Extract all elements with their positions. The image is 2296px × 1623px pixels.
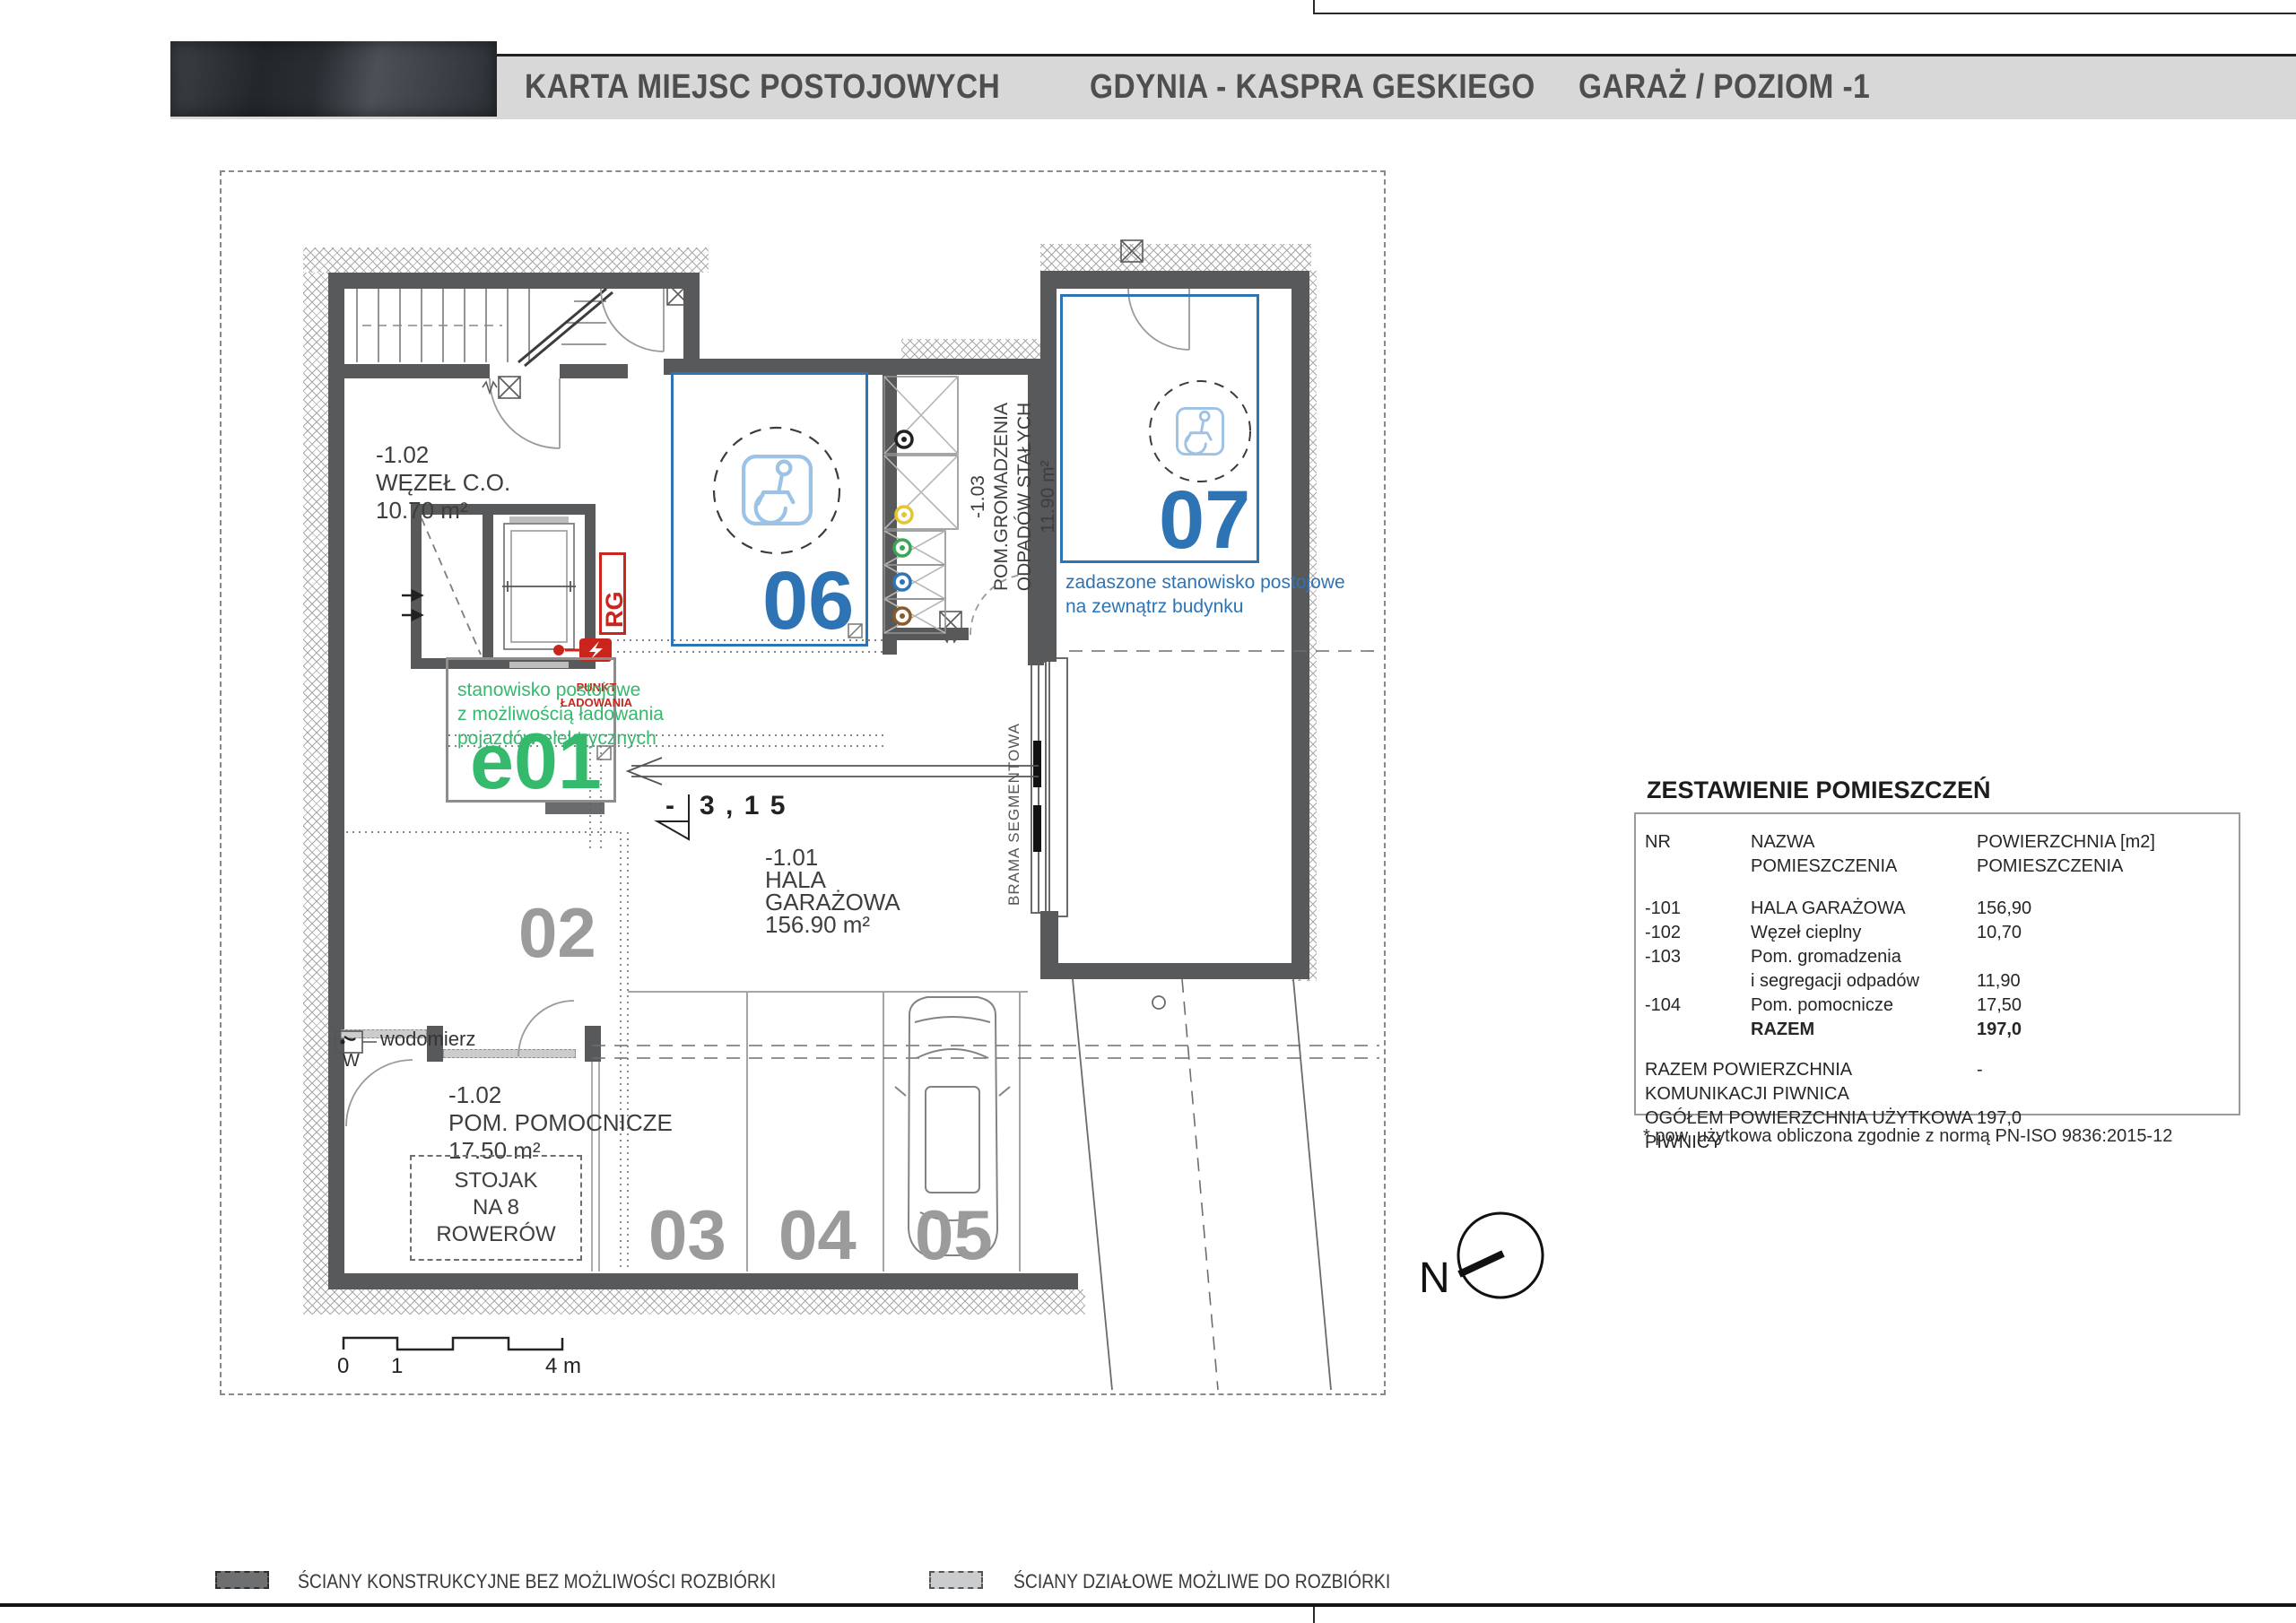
gate-label: BRAMA SEGMENTOWA <box>1005 723 1023 906</box>
space-number-03: 03 <box>648 1194 726 1276</box>
table-row: -104Pom. pomocnicze17,50 <box>1636 994 2239 1018</box>
legend-swatch-structural <box>215 1571 269 1589</box>
header-title-location: GDYNIA - KASPRA GESKIEGO <box>1090 68 1596 107</box>
table-footnote: * pow. użytkowa obliczona zgodnie z norm… <box>1643 1126 2172 1147</box>
space-number-07: 07 <box>1159 473 1250 568</box>
elevator-shaft-wall <box>483 504 493 669</box>
hatch-waste-top <box>901 339 1043 360</box>
table-cell <box>1645 969 1751 994</box>
table-row: i segregacji odpadów11,90 <box>1636 969 2239 994</box>
level-value: 3 , 1 5 <box>700 791 787 821</box>
space-number-02: 02 <box>518 892 596 974</box>
rg-label: RG <box>601 592 629 629</box>
wall <box>560 364 628 378</box>
scale-0: 0 <box>337 1354 349 1379</box>
water-meter-symbol: W <box>343 1051 360 1072</box>
table-cell: RAZEM POWIERZCHNIA KOMUNIKACJI PIWNICA <box>1645 1058 1977 1107</box>
header-title-level: GARAŻ / POZIOM -1 <box>1578 68 1910 107</box>
room-table: NRNAZWAPOWIERZCHNIA [m2] POMIESZCZENIAPO… <box>1634 812 2240 1115</box>
table-title: ZESTAWIENIE POMIESZCZEŃ <box>1647 777 1991 804</box>
table-cell: Pom. gromadzenia <box>1751 945 1977 969</box>
legend-swatch-partition <box>929 1571 983 1589</box>
header-title-project: KARTA MIEJSC POSTOJOWYCH <box>525 68 1065 107</box>
legend-label-structural: ŚCIANY KONSTRUKCYJNE BEZ MOŻLIWOŚCI ROZB… <box>298 1570 841 1593</box>
table-cell <box>1645 1018 1751 1042</box>
hatch-07-top <box>1040 244 1311 271</box>
table-cell: 197,0 <box>1977 1018 2230 1042</box>
table-header: NRNAZWAPOWIERZCHNIA [m2] <box>1636 814 2239 855</box>
wall <box>1040 271 1309 289</box>
partition-post <box>585 1026 601 1062</box>
table-cell: 10,70 <box>1977 921 2230 945</box>
wall <box>1291 271 1309 979</box>
drawing-sheet: KARTA MIEJSC POSTOJOWYCH GDYNIA - KASPRA… <box>0 0 2296 1623</box>
room-label-hala: -1.01HALAGARAŻOWA156.90 m² <box>765 846 900 936</box>
hatch-bottom <box>303 1289 1085 1315</box>
table-cell: 17,50 <box>1977 994 2230 1018</box>
wall <box>683 273 700 371</box>
room-label-odpady: -1.03POM.GROMADZENIAODPADÓW STAŁYCH11.90… <box>967 384 1060 610</box>
table-cell: -103 <box>1645 945 1751 969</box>
frame-bottom-line <box>0 1603 2296 1607</box>
space-number-04: 04 <box>778 1194 857 1276</box>
table-cell: Węzeł cieplny <box>1751 921 1977 945</box>
table-cell: i segregacji odpadów <box>1751 969 1977 994</box>
table-row: -102Węzeł cieplny10,70 <box>1636 921 2239 945</box>
table-cell: 11,90 <box>1977 969 2230 994</box>
elevator-shaft-wall <box>411 504 422 669</box>
frame-bottom-tick <box>1313 1607 1315 1623</box>
water-meter-label: wodomierz <box>380 1028 475 1051</box>
table-row: RAZEM197,0 <box>1636 1018 2239 1042</box>
table-cell <box>1977 945 2230 969</box>
north-label: N <box>1419 1254 1450 1303</box>
elevator-shaft-wall <box>585 504 596 669</box>
space-number-05: 05 <box>915 1194 993 1276</box>
table-summary-row: RAZEM POWIERZCHNIA KOMUNIKACJI PIWNICA- <box>1636 1058 2239 1107</box>
table-row: -103Pom. gromadzenia <box>1636 945 2239 969</box>
e01-note: stanowisko postojowez możliwością ładowa… <box>457 678 664 751</box>
frame-top-line <box>1313 13 2296 14</box>
table-cell: - <box>1977 1058 2230 1107</box>
table-cell: HALA GARAŻOWA <box>1751 897 1977 921</box>
frame-top-tick <box>1313 0 1315 13</box>
scale-4m: 4 m <box>545 1354 581 1379</box>
wall <box>883 359 897 655</box>
table-row: -101HALA GARAŻOWA156,90 <box>1636 897 2239 921</box>
hatch-top <box>303 247 709 273</box>
hatch-left <box>303 247 330 1315</box>
table-cell: -102 <box>1645 921 1751 945</box>
table-cell: -104 <box>1645 994 1751 1018</box>
table-cell: 156,90 <box>1977 897 2230 921</box>
wall <box>1040 911 1058 979</box>
legend-label-partition: ŚCIANY DZIAŁOWE MOŻLIWE DO ROZBIÓRKI <box>1013 1570 1442 1593</box>
wall <box>328 273 344 1289</box>
room-label-wezel: -1.02WĘZEŁ C.O.10.70 m² <box>376 441 510 525</box>
table-cell: Pom. pomocnicze <box>1751 994 1977 1018</box>
wall <box>328 273 700 289</box>
wall <box>899 359 1042 375</box>
wall <box>328 364 490 378</box>
wall <box>883 628 969 640</box>
s07-note: zadaszone stanowisko postojowena zewnątr… <box>1065 570 1345 619</box>
room-table-rows: -101HALA GARAŻOWA156,90-102Węzeł cieplny… <box>1636 897 2239 1042</box>
bike-rack-box: STOJAKNA 8 ROWERÓW <box>410 1155 582 1261</box>
north-arrow-icon <box>1458 1213 1543 1298</box>
wall <box>1040 963 1309 979</box>
table-cell: RAZEM <box>1751 1018 1977 1042</box>
table-header-line2: POMIESZCZENIAPOMIESZCZENIA <box>1636 855 2239 879</box>
scale-1: 1 <box>391 1354 403 1379</box>
space-number-06: 06 <box>762 554 854 648</box>
room-label-pomocnicze: -1.02POM. POMOCNICZE17.50 m² <box>448 1081 673 1165</box>
level-minus: - <box>665 791 674 821</box>
logo-image <box>170 41 497 117</box>
table-cell: -101 <box>1645 897 1751 921</box>
